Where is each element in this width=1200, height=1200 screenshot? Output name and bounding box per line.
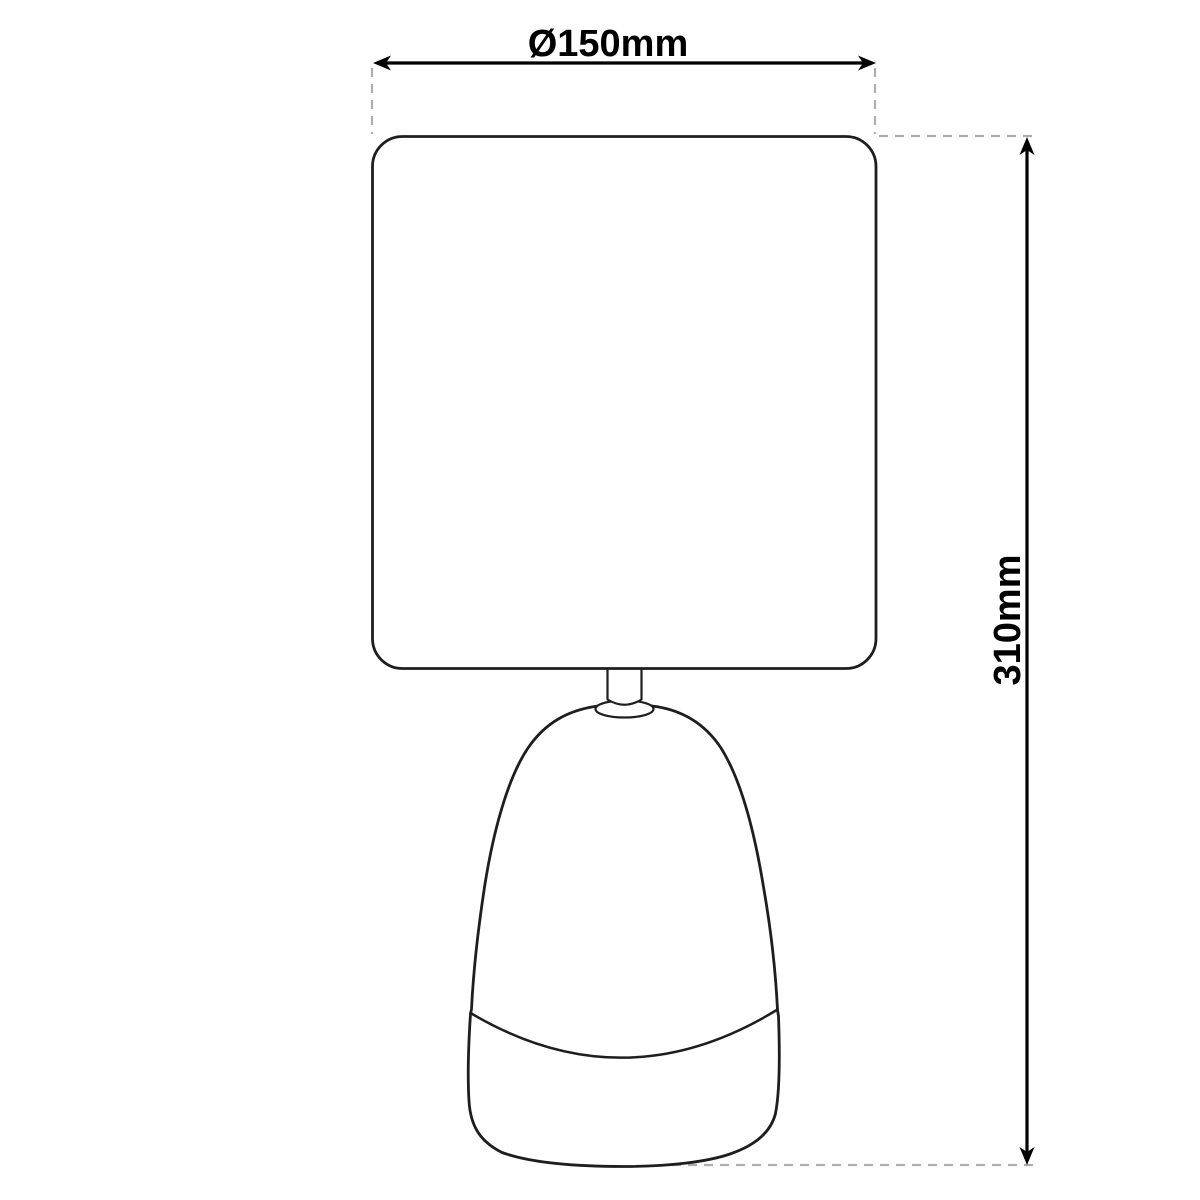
width-dimension-label: Ø150mm — [528, 23, 689, 65]
lamp-dimension-drawing: Ø150mm 310mm — [0, 0, 1200, 1200]
width-dimension: Ø150mm — [373, 23, 876, 71]
lamp-drawing — [373, 137, 877, 1167]
socket-neck — [608, 667, 642, 705]
diagram-canvas: Ø150mm 310mm — [0, 0, 1200, 1200]
lamp-base — [468, 706, 779, 1167]
height-dimension: 310mm — [987, 137, 1035, 1165]
lamp-shade — [373, 137, 877, 669]
height-dimension-label: 310mm — [987, 555, 1029, 686]
